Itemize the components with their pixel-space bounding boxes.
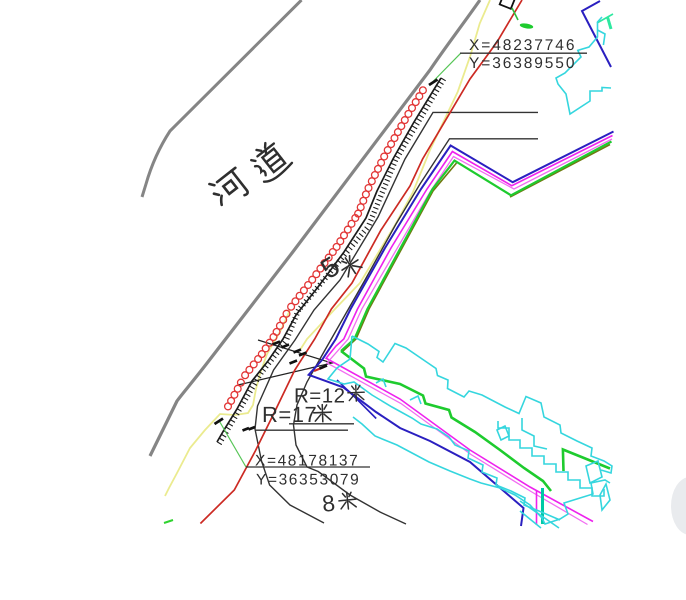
svg-text:8: 8 — [321, 490, 336, 517]
svg-text:Y=36389550: Y=36389550 — [469, 55, 576, 72]
svg-text:Y=36353079: Y=36353079 — [256, 472, 360, 489]
svg-text:R=17: R=17 — [262, 402, 317, 427]
svg-text:X=48178137: X=48178137 — [255, 453, 359, 470]
svg-text:X=48237746: X=48237746 — [469, 37, 576, 54]
